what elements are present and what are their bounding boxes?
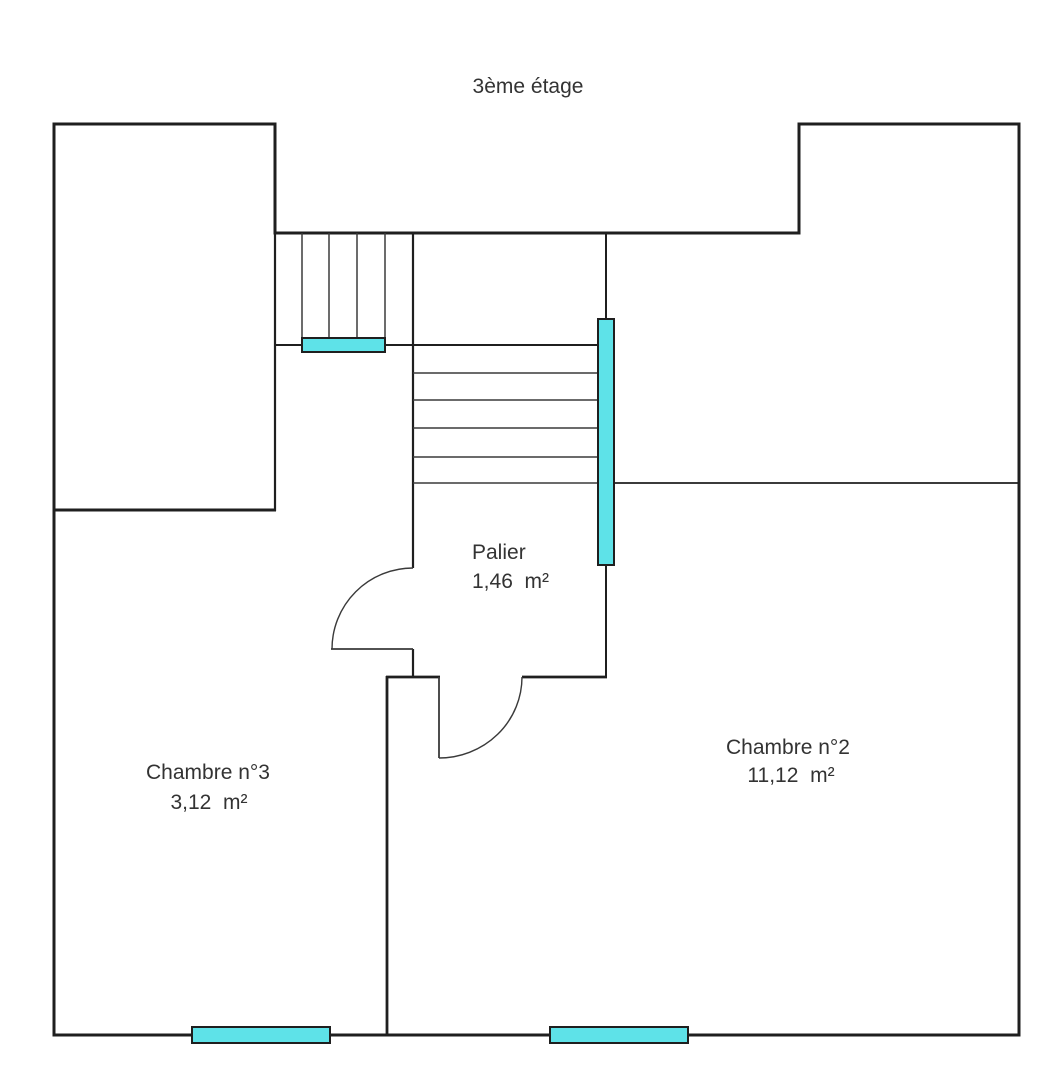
room-label-palier-name: Palier [472,541,526,564]
room-label-chambre3-area: 3,12 m² [170,791,247,814]
window-chambre2-south [550,1027,688,1043]
room-label-chambre2-area: 11,12 m² [747,764,834,787]
window-chambre3-south [192,1027,330,1043]
room-label-palier-area: 1,46 m² [472,570,549,593]
room-label-chambre2-name: Chambre n°2 [726,736,850,759]
floor-title: 3ème étage [473,75,584,98]
floor-plan-canvas: 3ème étage Palier 1,46 m² Chambre n°2 11… [0,0,1044,1090]
window-stair-upper [302,338,385,352]
floor-plan-page: 3ème étage Palier 1,46 m² Chambre n°2 11… [0,0,1044,1090]
window-palier-east [598,319,614,565]
room-label-chambre3-name: Chambre n°3 [146,761,270,784]
